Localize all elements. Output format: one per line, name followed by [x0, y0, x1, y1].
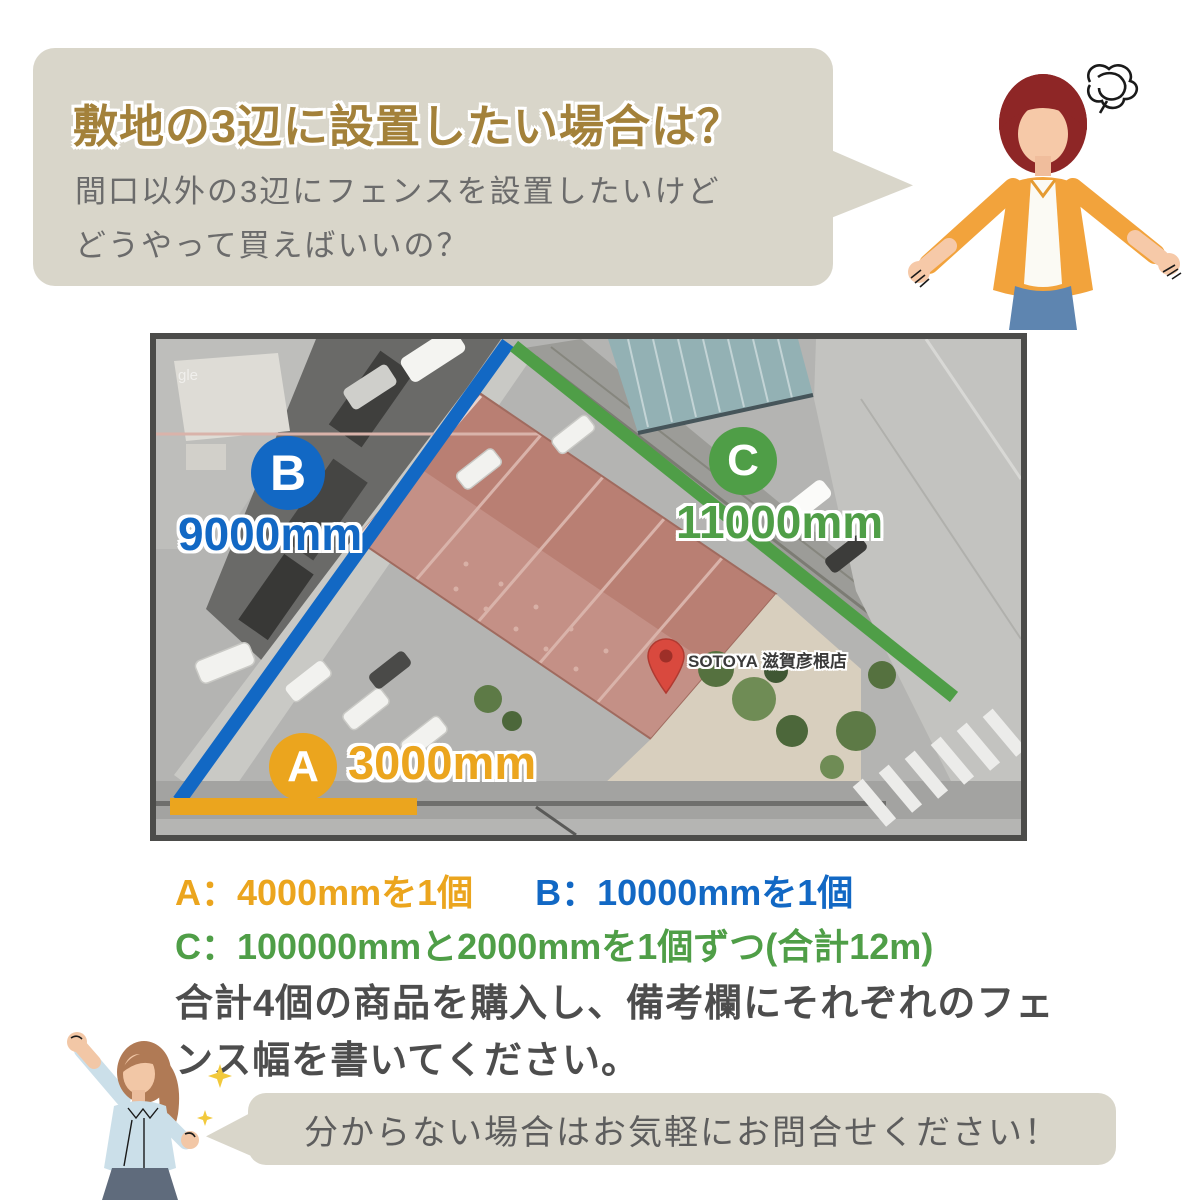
- confused-woman-icon: [893, 52, 1195, 330]
- line-a: [170, 798, 417, 815]
- measurement-a: 3000mm: [348, 735, 536, 790]
- purchase-note-line1: 合計4個の商品を購入し、備考欄にそれぞれのフェ: [175, 972, 1054, 1027]
- contact-bubble: 分からない場合はお気軽にお問合せください！: [248, 1093, 1116, 1165]
- badge-c: C: [709, 427, 777, 495]
- purchase-item-a: A：4000mmを1個: [175, 872, 473, 913]
- cheering-woman-art: [28, 1028, 256, 1200]
- map-pin-icon: [648, 639, 684, 693]
- page-title: 敷地の3辺に設置したい場合は？: [73, 90, 813, 155]
- store-pin-label: SOTOYA 滋賀彦根店: [688, 647, 847, 672]
- badge-b: B: [251, 436, 325, 510]
- question-text-line1: 間口以外の3辺にフェンスを設置したいけど: [75, 166, 815, 211]
- infographic-page: 敷地の3辺に設置したい場合は？ 間口以外の3辺にフェンスを設置したいけど どうや…: [0, 0, 1200, 1200]
- purchase-line-ab: A：4000mmを1個B：10000mmを1個: [175, 864, 853, 916]
- question-text-line2: どうやって買えばいいの？: [75, 220, 815, 265]
- sparkle-icon: [197, 1064, 232, 1126]
- question-bubble: 敷地の3辺に設置したい場合は？ 間口以外の3辺にフェンスを設置したいけど どうや…: [33, 48, 833, 286]
- scribble-icon: [1088, 65, 1137, 113]
- cheering-woman-icon: [28, 1028, 256, 1200]
- line-b: [179, 343, 508, 801]
- badge-a: A: [269, 733, 337, 801]
- measurement-c: 11000mm: [676, 495, 883, 549]
- map-watermark: gle: [178, 367, 198, 384]
- aerial-map: gle B C A 9000mm 11000mm 3000mm SOTOYA 滋…: [150, 333, 1027, 841]
- confused-woman-art: [893, 52, 1195, 330]
- purchase-item-c: C：100000mmと2000mmを1個ずつ(合計12m): [175, 918, 933, 970]
- purchase-item-b: B：10000mmを1個: [535, 872, 853, 913]
- measurement-b: 9000mm: [178, 507, 362, 561]
- contact-message: 分からない場合はお気軽にお問合せください！: [304, 1105, 1060, 1154]
